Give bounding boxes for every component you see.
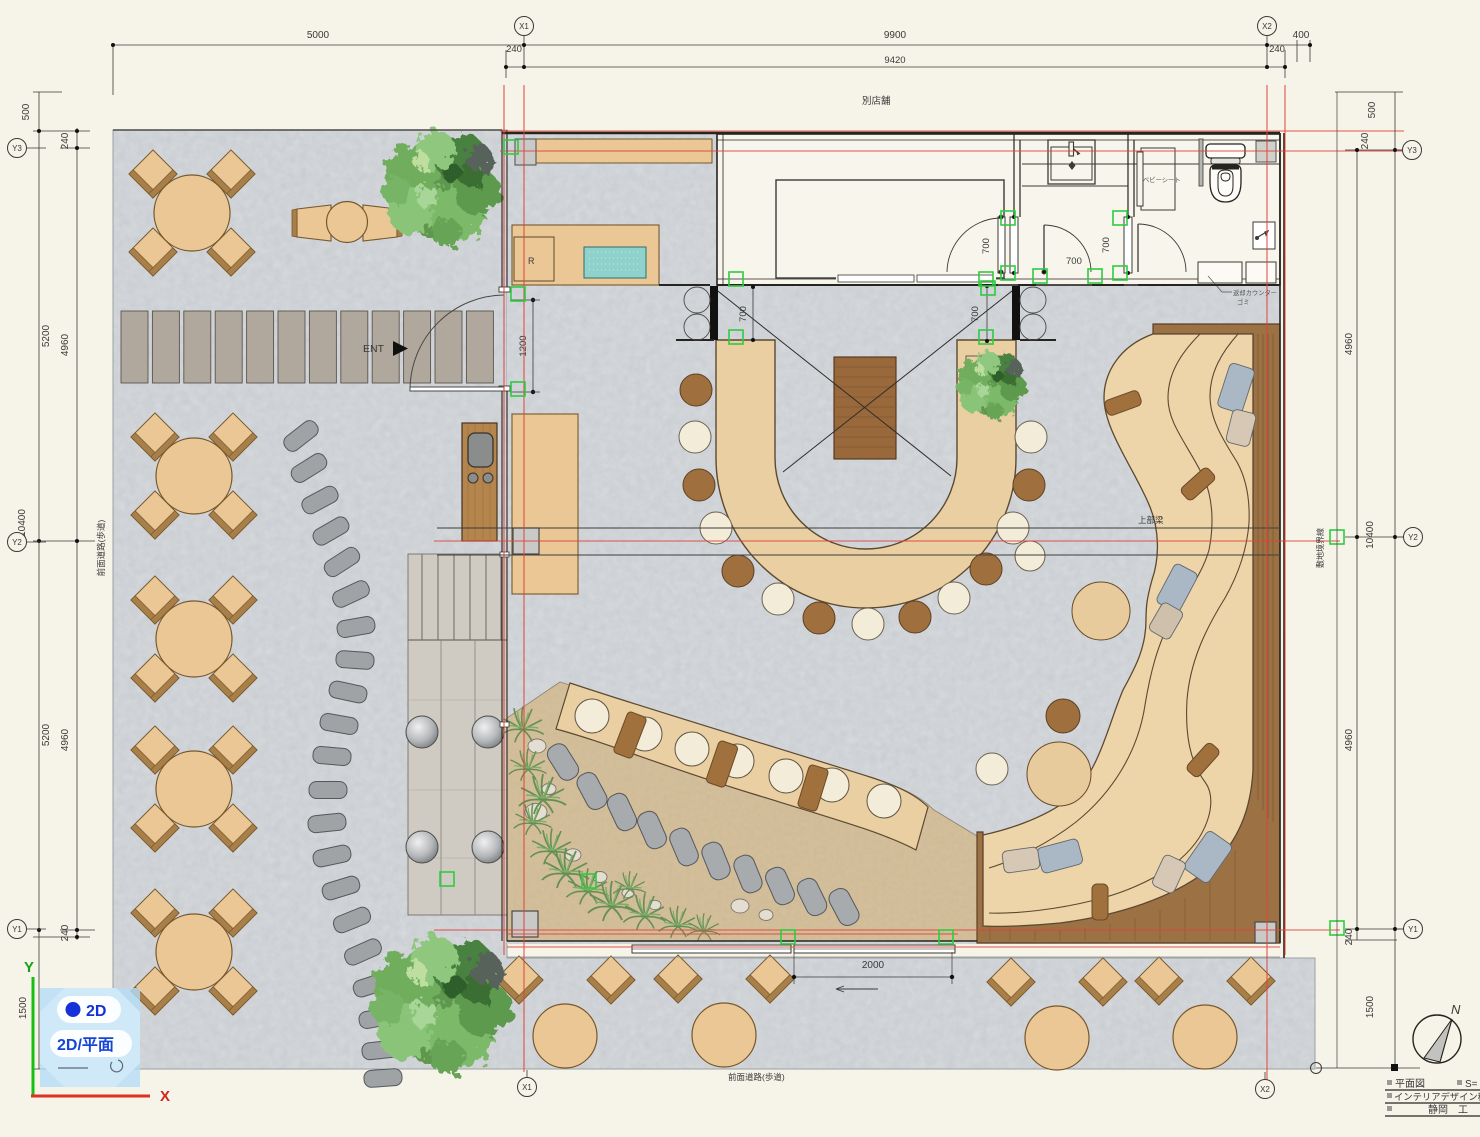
svg-text:X1: X1 bbox=[522, 1083, 532, 1092]
svg-text:ベビーシート: ベビーシート bbox=[1143, 175, 1181, 184]
svg-text:1500: 1500 bbox=[18, 996, 29, 1019]
svg-text:インテリアデザイン科1: インテリアデザイン科1 bbox=[1394, 1091, 1480, 1102]
svg-text:平面図: 平面図 bbox=[1395, 1078, 1425, 1090]
svg-text:別店舗: 別店舗 bbox=[862, 95, 891, 107]
svg-text:9420: 9420 bbox=[884, 55, 905, 66]
svg-text:400: 400 bbox=[1293, 30, 1310, 41]
svg-text:Y3: Y3 bbox=[12, 144, 22, 153]
svg-text:240: 240 bbox=[60, 132, 71, 149]
svg-text:700: 700 bbox=[981, 238, 992, 254]
svg-text:上部梁: 上部梁 bbox=[1138, 515, 1164, 525]
svg-text:240: 240 bbox=[1344, 928, 1355, 945]
svg-text:2000: 2000 bbox=[862, 960, 885, 971]
svg-text:敷地境界線: 敷地境界線 bbox=[1315, 528, 1325, 568]
svg-text:Y3: Y3 bbox=[1407, 146, 1417, 155]
svg-text:240: 240 bbox=[506, 44, 522, 55]
svg-text:9900: 9900 bbox=[884, 30, 907, 41]
svg-text:Y: Y bbox=[24, 959, 34, 976]
svg-text:4960: 4960 bbox=[1344, 728, 1355, 751]
svg-text:前面道路(歩道): 前面道路(歩道) bbox=[96, 520, 106, 577]
svg-text:X: X bbox=[160, 1088, 170, 1105]
svg-text:500: 500 bbox=[21, 103, 32, 120]
svg-text:5200: 5200 bbox=[41, 324, 52, 347]
svg-text:1500: 1500 bbox=[1365, 995, 1376, 1018]
svg-text:4960: 4960 bbox=[60, 333, 71, 356]
svg-text:Y1: Y1 bbox=[12, 925, 22, 934]
svg-text:700: 700 bbox=[1066, 256, 1082, 267]
svg-text:700: 700 bbox=[738, 306, 749, 322]
svg-text:5000: 5000 bbox=[307, 30, 330, 41]
svg-text:4960: 4960 bbox=[60, 728, 71, 751]
svg-text:ENT: ENT bbox=[363, 343, 385, 355]
svg-text:240: 240 bbox=[1269, 44, 1285, 55]
svg-text:X2: X2 bbox=[1262, 22, 1272, 31]
svg-text:ゴミ: ゴミ bbox=[1237, 297, 1250, 306]
svg-text:700: 700 bbox=[1101, 237, 1112, 253]
svg-text:700: 700 bbox=[970, 306, 981, 322]
svg-text:4960: 4960 bbox=[1344, 332, 1355, 355]
svg-text:前面道路(歩道): 前面道路(歩道) bbox=[728, 1072, 785, 1082]
svg-text:静岡 工: 静岡 工 bbox=[1428, 1103, 1468, 1116]
svg-text:S=: S= bbox=[1465, 1079, 1478, 1090]
svg-text:R: R bbox=[528, 256, 535, 266]
svg-text:5200: 5200 bbox=[41, 723, 52, 746]
svg-text:2D: 2D bbox=[86, 1003, 106, 1020]
svg-text:240: 240 bbox=[60, 924, 71, 941]
svg-text:返却カウンター: 返却カウンター bbox=[1233, 288, 1277, 297]
svg-text:N: N bbox=[1451, 1002, 1461, 1017]
svg-text:2D/平面: 2D/平面 bbox=[57, 1036, 114, 1054]
svg-text:240: 240 bbox=[1360, 132, 1371, 149]
svg-text:X2: X2 bbox=[1260, 1085, 1270, 1094]
svg-text:Y2: Y2 bbox=[12, 538, 22, 547]
svg-text:X1: X1 bbox=[519, 22, 529, 31]
svg-text:Y1: Y1 bbox=[1408, 925, 1418, 934]
svg-text:10400: 10400 bbox=[1365, 521, 1376, 549]
svg-text:500: 500 bbox=[1367, 101, 1378, 118]
svg-text:Y2: Y2 bbox=[1408, 533, 1418, 542]
